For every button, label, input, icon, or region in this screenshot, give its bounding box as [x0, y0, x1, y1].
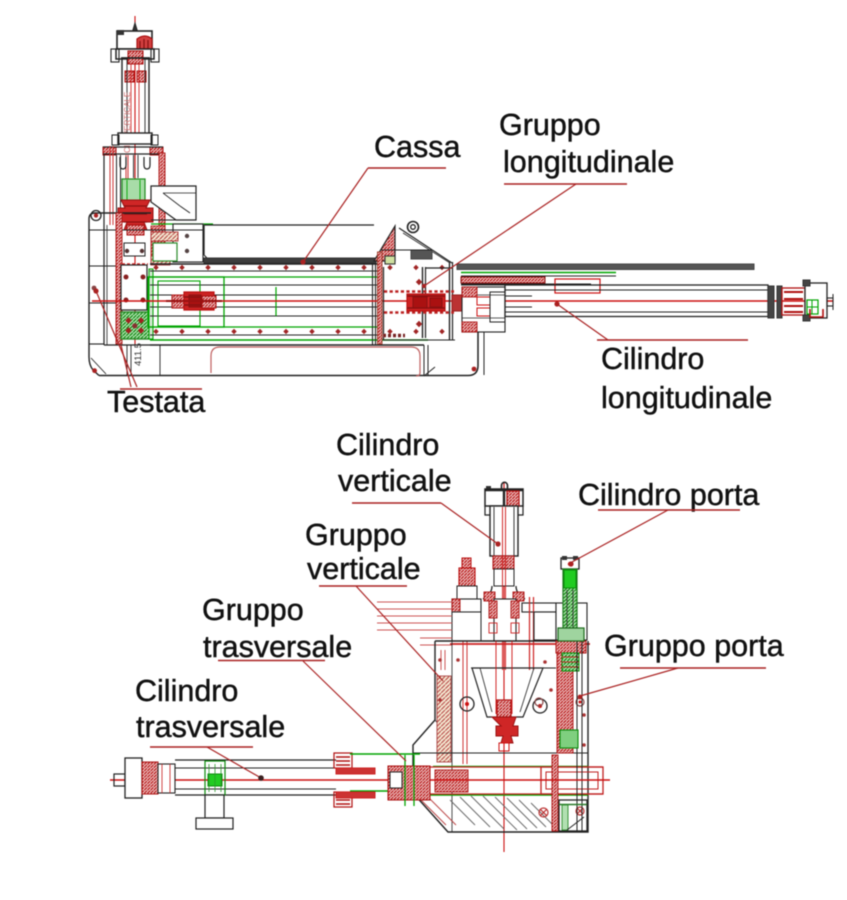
- svg-text:Cilindro: Cilindro: [601, 342, 704, 376]
- svg-text:longitudinale: longitudinale: [601, 381, 772, 415]
- svg-text:Gruppo: Gruppo: [305, 518, 407, 552]
- svg-text:verticale: verticale: [338, 464, 452, 498]
- svg-text:Cilindro: Cilindro: [135, 674, 238, 708]
- svg-text:411.5: 411.5: [133, 343, 144, 366]
- svg-text:Cilindro: Cilindro: [336, 428, 439, 462]
- svg-text:Cassa: Cassa: [374, 130, 460, 164]
- svg-text:Cilindro porta: Cilindro porta: [578, 478, 759, 512]
- svg-text:Gruppo: Gruppo: [202, 593, 304, 627]
- svg-text:Testata: Testata: [107, 385, 205, 419]
- svg-text:longitudinale: longitudinale: [503, 145, 674, 179]
- svg-text:trasversale: trasversale: [203, 630, 352, 664]
- svg-text:Gruppo: Gruppo: [499, 108, 601, 142]
- svg-text:verticale: verticale: [307, 552, 421, 586]
- svg-text:Gruppo porta: Gruppo porta: [604, 629, 784, 663]
- svg-text:trasversale: trasversale: [136, 710, 285, 744]
